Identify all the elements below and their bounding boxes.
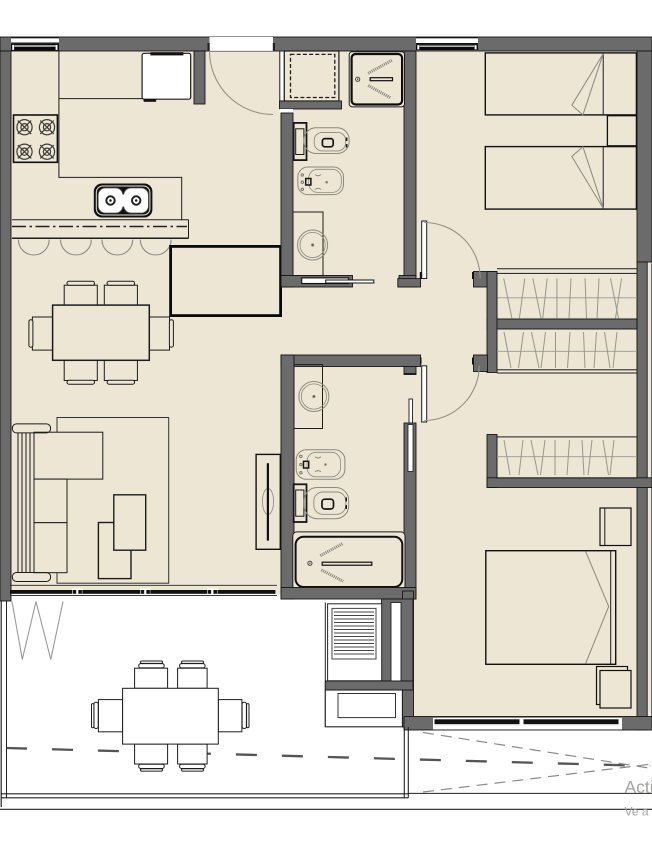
svg-text:Activar W: Activar W: [625, 777, 652, 797]
svg-text:Ve a Config: Ve a Config: [625, 805, 652, 819]
